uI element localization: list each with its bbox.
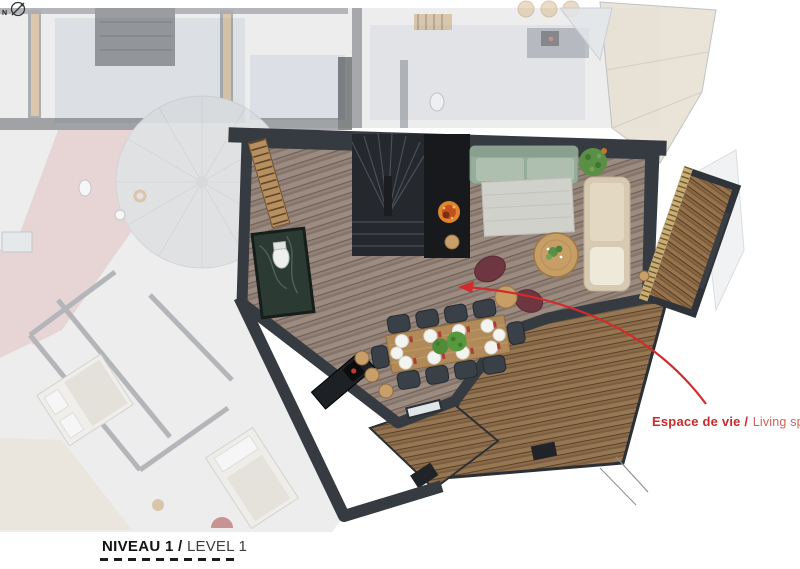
living-space-label-fr: Espace de vie / bbox=[652, 414, 748, 429]
main-apartment-unit bbox=[236, 133, 741, 516]
floor-plan-rendering bbox=[0, 0, 800, 569]
toilet-tank bbox=[273, 241, 286, 249]
side-table-icon bbox=[495, 286, 517, 308]
faded-wood-hatch bbox=[414, 14, 452, 30]
faded-wash bbox=[250, 55, 345, 120]
level-dashed-underline bbox=[100, 558, 240, 561]
faded-stove-burner bbox=[549, 37, 554, 42]
beige-sofa-icon bbox=[584, 177, 630, 291]
living-space-label-en: Living space bbox=[753, 415, 800, 429]
faded-wall bbox=[352, 8, 362, 128]
faded-window-wood bbox=[31, 14, 39, 116]
floor-plan-page: Espace de vie / Living space NIVEAU 1 / … bbox=[0, 0, 800, 569]
north-compass-icon: N bbox=[0, 0, 30, 20]
deck-stool-icon bbox=[639, 271, 649, 281]
faded-toilet bbox=[430, 93, 444, 111]
hearth-stool-icon bbox=[445, 235, 459, 249]
living-space-callout: Espace de vie / Living space bbox=[652, 413, 800, 431]
plant-icon bbox=[579, 148, 607, 176]
level-label-en: LEVEL 1 bbox=[187, 538, 247, 555]
faded-sink bbox=[115, 210, 125, 220]
faded-pendant bbox=[541, 1, 557, 17]
bar-stool-icon bbox=[355, 351, 369, 365]
faded-bathtub bbox=[2, 232, 32, 252]
faded-toilet bbox=[79, 180, 91, 196]
coffee-table-icon bbox=[534, 233, 578, 277]
faded-stair-slot bbox=[338, 57, 352, 130]
level-title: NIVEAU 1 / LEVEL 1 bbox=[102, 538, 247, 556]
faded-stool bbox=[152, 499, 164, 511]
bar-stool-icon bbox=[379, 384, 393, 398]
rug-icon bbox=[482, 178, 575, 237]
north-letter: N bbox=[2, 10, 7, 17]
fireplace-icon bbox=[424, 134, 470, 258]
faded-wall bbox=[400, 60, 408, 128]
extension-line bbox=[616, 457, 648, 492]
bar-stool-icon bbox=[365, 368, 379, 382]
faded-pendant bbox=[518, 1, 534, 17]
staircase-icon bbox=[352, 133, 424, 256]
level-label-fr: NIVEAU 1 / bbox=[102, 538, 183, 555]
powder-room-icon bbox=[252, 228, 314, 318]
